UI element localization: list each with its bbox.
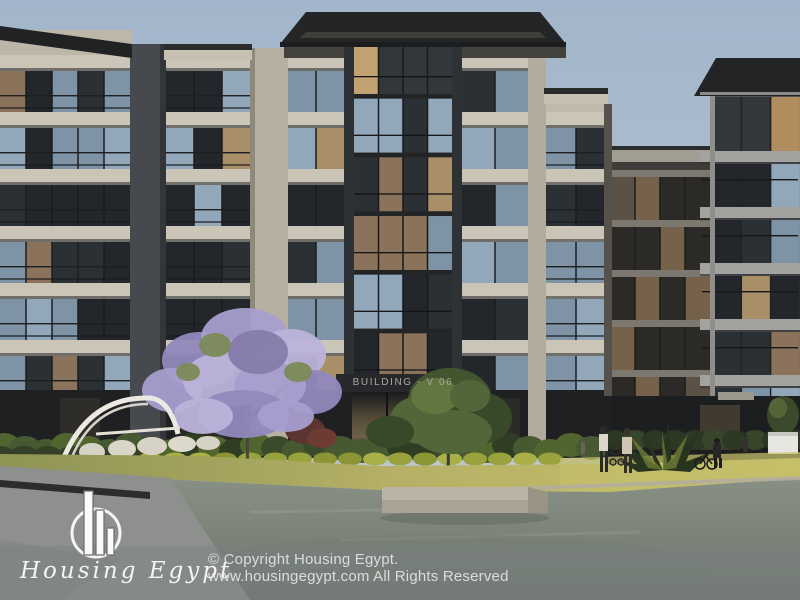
brand-logo: Housing Egypt xyxy=(8,484,218,600)
copyright-line: © Copyright Housing Egypt. xyxy=(208,551,509,568)
tower-roof xyxy=(280,12,566,44)
architectural-render: BUILDING - V 06 © Copyright Housing Egyp… xyxy=(0,0,800,600)
stone-bench xyxy=(380,487,550,525)
building-entrance-sign-text: BUILDING - V 06 xyxy=(336,377,470,391)
skyline-bars-circle-icon xyxy=(8,484,208,564)
rights-line: www.housingegypt.com All Rights Reserved xyxy=(208,568,509,585)
planter-tree xyxy=(767,396,799,454)
copyright-text: © Copyright Housing Egypt. www.housingeg… xyxy=(208,551,509,585)
brand-name: Housing Egypt xyxy=(20,558,210,584)
canopy-slab xyxy=(718,392,754,400)
